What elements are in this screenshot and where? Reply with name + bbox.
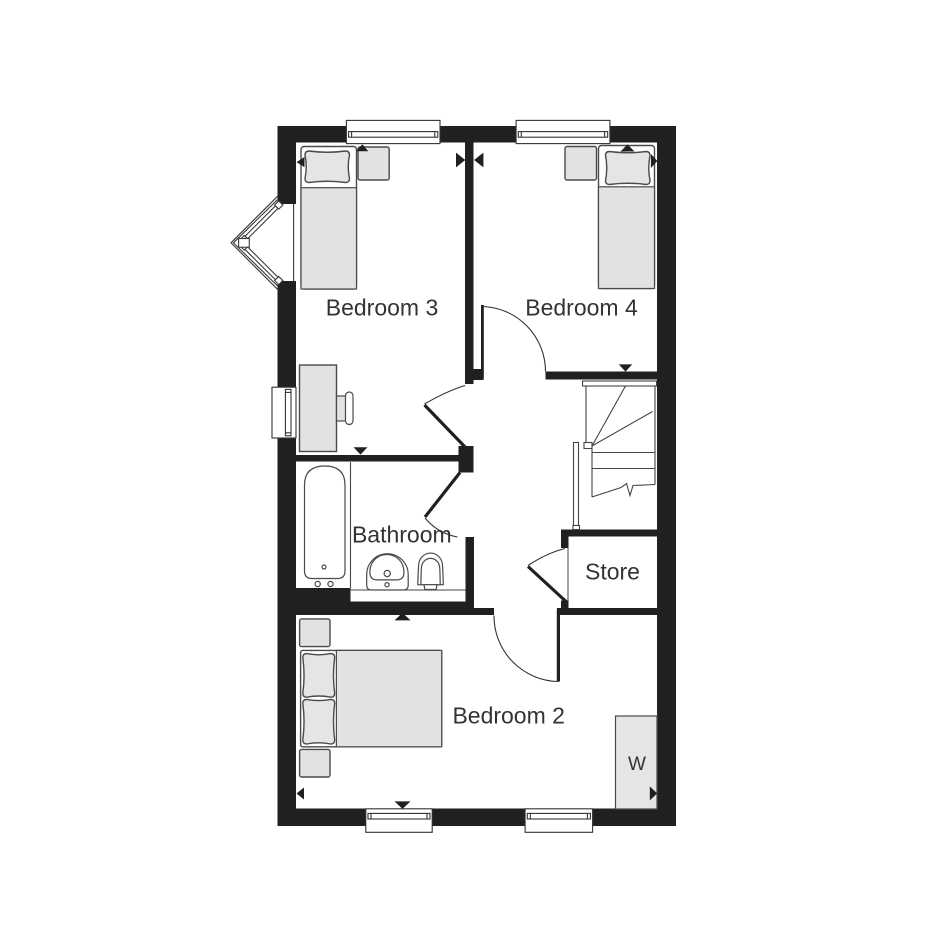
svg-text:Bedroom 2: Bedroom 2 — [452, 703, 565, 729]
svg-text:Store: Store — [585, 559, 640, 585]
svg-text:Bathroom: Bathroom — [352, 522, 452, 548]
svg-text:Bedroom 3: Bedroom 3 — [326, 295, 439, 321]
svg-text:Bedroom 4: Bedroom 4 — [525, 295, 638, 321]
svg-text:W: W — [628, 754, 646, 775]
